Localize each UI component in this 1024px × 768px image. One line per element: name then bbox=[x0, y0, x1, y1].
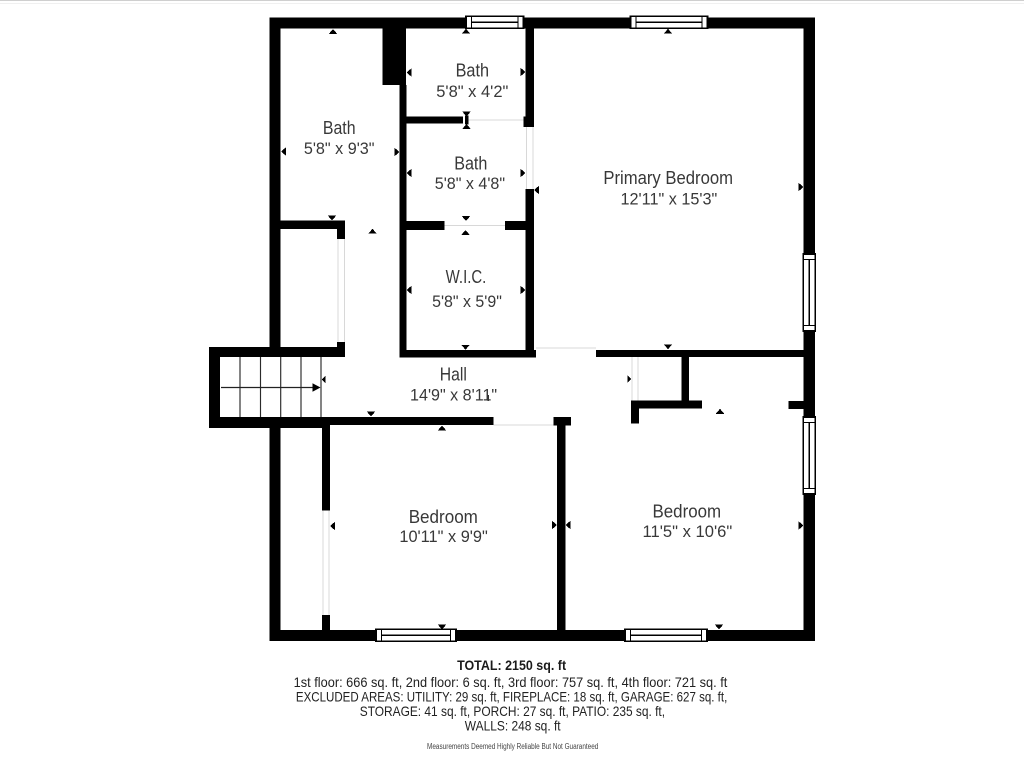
svg-text:TOTAL: 2150 sq. ft: TOTAL: 2150 sq. ft bbox=[457, 657, 566, 673]
svg-text:W.I.C.: W.I.C. bbox=[446, 266, 487, 287]
svg-text:Primary Bedroom: Primary Bedroom bbox=[603, 167, 733, 188]
svg-text:14'9" x 8'11": 14'9" x 8'11" bbox=[410, 386, 497, 405]
svg-text:Hall: Hall bbox=[440, 364, 467, 385]
svg-text:5'8" x 4'8": 5'8" x 4'8" bbox=[435, 174, 505, 193]
svg-text:WALLS: 248 sq. ft: WALLS: 248 sq. ft bbox=[465, 717, 561, 733]
svg-text:10'11" x 9'9": 10'11" x 9'9" bbox=[399, 527, 488, 546]
svg-text:5'8" x 4'2": 5'8" x 4'2" bbox=[436, 82, 508, 101]
svg-text:Bath: Bath bbox=[323, 117, 356, 138]
svg-text:Measurements Deemed Highly Rel: Measurements Deemed Highly Reliable But … bbox=[427, 742, 598, 751]
svg-text:11'5" x 10'6": 11'5" x 10'6" bbox=[643, 522, 733, 541]
svg-text:Bath: Bath bbox=[454, 152, 487, 173]
svg-text:Bath: Bath bbox=[456, 59, 489, 80]
svg-text:5'8" x 9'3": 5'8" x 9'3" bbox=[304, 139, 375, 158]
svg-text:5'8" x 5'9": 5'8" x 5'9" bbox=[432, 292, 502, 311]
svg-text:Bedroom: Bedroom bbox=[653, 500, 722, 521]
svg-text:12'11" x 15'3": 12'11" x 15'3" bbox=[621, 190, 718, 209]
svg-text:Bedroom: Bedroom bbox=[409, 506, 478, 527]
